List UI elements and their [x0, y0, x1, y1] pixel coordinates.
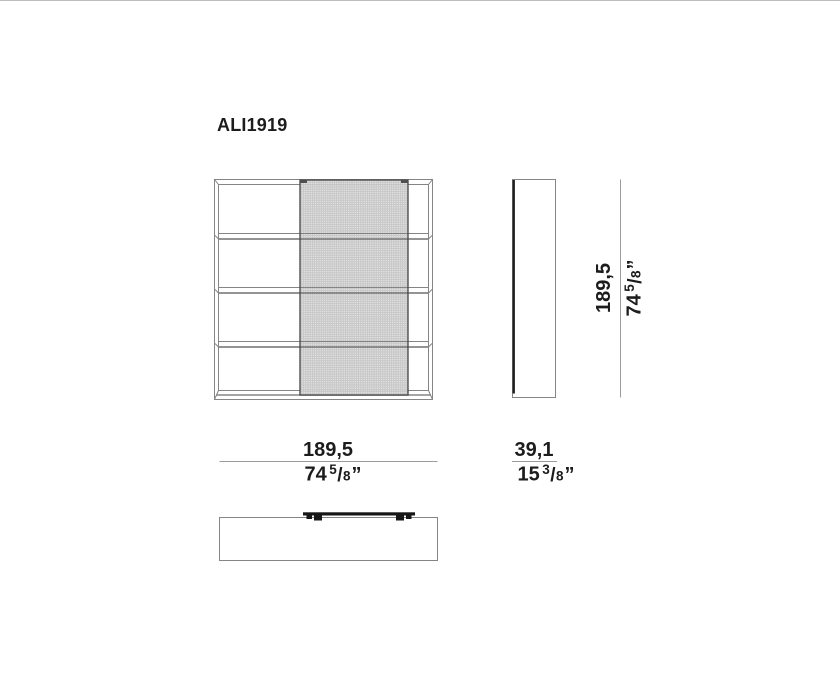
catalog-dimension-page: ALI1919: [0, 0, 840, 679]
height-imperial-unit: ”: [623, 259, 645, 269]
width-imperial-unit: ”: [352, 464, 362, 486]
height-dimension-metric: 189,5: [591, 168, 617, 408]
height-imperial-denominator: 8: [628, 270, 643, 278]
depth-dimension-metric: 39,1: [515, 440, 554, 460]
depth-imperial-denominator: 8: [556, 469, 564, 484]
depth-imperial-separator: /: [550, 465, 555, 486]
plan-view: [220, 512, 438, 560]
height-imperial-numerator: 5: [622, 284, 637, 292]
width-imperial-denominator: 8: [343, 469, 351, 484]
width-dimension-imperial: 745/8”: [304, 463, 361, 485]
depth-imperial-whole: 15: [517, 464, 539, 486]
width-imperial-whole: 74: [304, 464, 326, 486]
plan-outline: [220, 518, 438, 561]
depth-imperial-numerator: 3: [542, 462, 550, 477]
height-dimension-imperial: 745/8”: [617, 168, 650, 408]
width-dimension-metric: 189,5: [303, 440, 353, 460]
height-imperial-whole: 74: [623, 294, 645, 316]
side-view: [513, 180, 556, 398]
height-imperial-separator: /: [624, 278, 645, 283]
depth-imperial-unit: ”: [565, 464, 575, 486]
technical-drawing: [0, 0, 840, 679]
side-outline: [513, 180, 556, 398]
width-imperial-separator: /: [337, 465, 342, 486]
depth-dimension-imperial: 153/8”: [517, 463, 574, 485]
width-imperial-numerator: 5: [329, 462, 337, 477]
height-dimension-block: 189,5 745/8”: [591, 168, 650, 408]
front-view: [215, 180, 433, 400]
